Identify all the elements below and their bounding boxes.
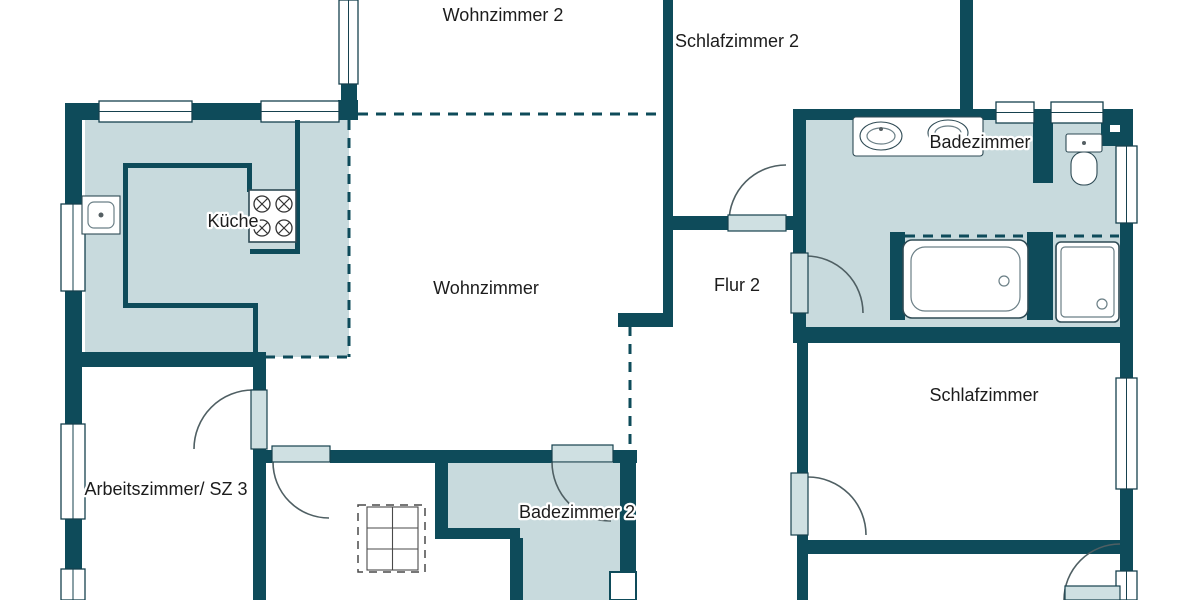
kitchen-sink-icon — [82, 196, 120, 234]
room-label-wohnzimmer-2: Wohnzimmer 2 — [443, 5, 564, 25]
toilet-icon — [1066, 134, 1102, 185]
room-label-arbeitszimmer-sz3: Arbeitszimmer/ SZ 3 — [84, 479, 247, 499]
floor-plan-canvas: Wohnzimmer 2 Schlafzimmer 2 Badezimmer K… — [0, 0, 1200, 600]
room-label-badezimmer-2: Badezimmer 2 — [519, 502, 635, 522]
room-label-flur-2: Flur 2 — [714, 275, 760, 295]
room-label-schlafzimmer: Schlafzimmer — [929, 385, 1038, 405]
bottom-opening-notch — [610, 572, 636, 600]
door-schlafzimmer — [791, 473, 866, 535]
room-label-badezimmer: Badezimmer — [929, 132, 1030, 152]
door-middle-room — [272, 446, 330, 518]
shower-icon — [1056, 236, 1119, 322]
room-label-wohnzimmer: Wohnzimmer — [433, 278, 539, 298]
floor-plan-svg: Wohnzimmer 2 Schlafzimmer 2 Badezimmer K… — [0, 0, 1200, 600]
room-label-kueche: Küche — [207, 211, 258, 231]
bathtub-icon — [903, 236, 1028, 318]
door-arbeitszimmer — [194, 390, 267, 449]
room-label-schlafzimmer-2: Schlafzimmer 2 — [675, 31, 799, 51]
door-schlafzimmer-2 — [728, 165, 786, 231]
dining-table-dashed — [358, 505, 425, 572]
